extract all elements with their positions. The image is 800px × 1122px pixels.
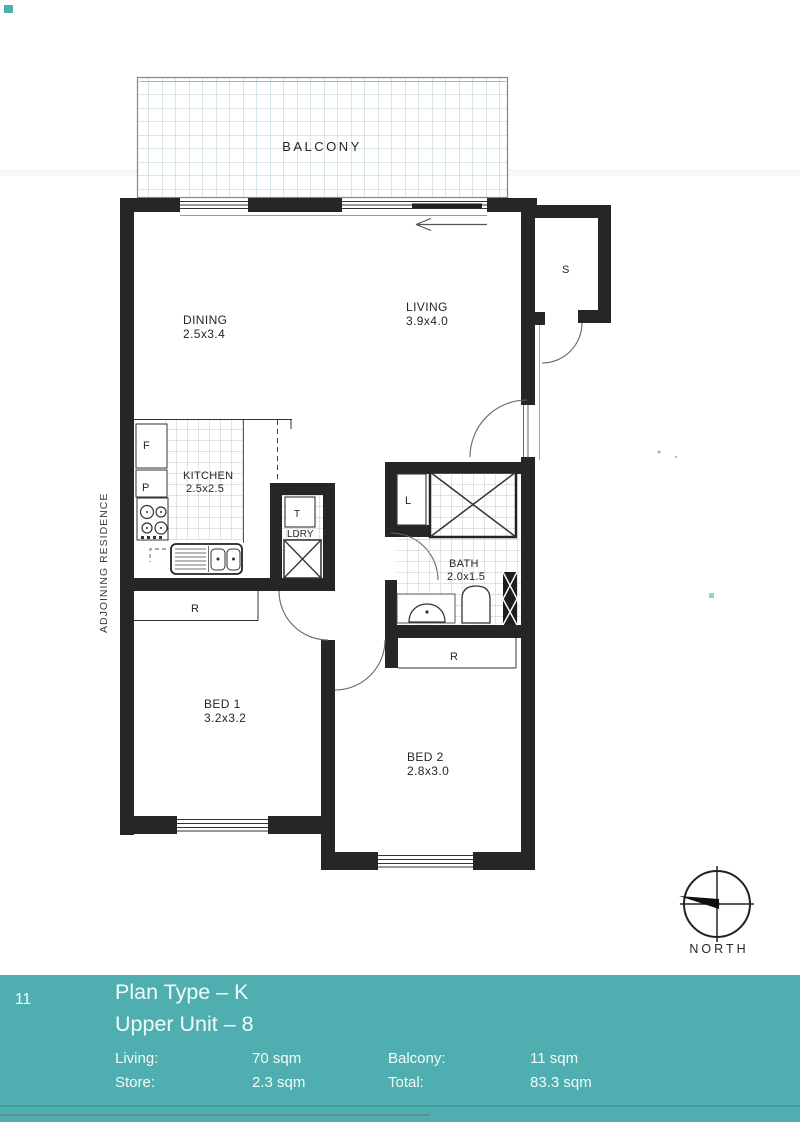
balcony-label: BALCONY [282,139,362,154]
page-number: 11 [15,991,31,1009]
stove [137,498,168,540]
room-dims-bath: 2.0x1.5 [447,571,485,583]
band-divider-line [0,1105,800,1107]
total-area-label: Total: [388,1074,424,1091]
living-area-label: Living: [115,1050,158,1067]
pantry-box [136,470,167,497]
room-dims-dining: 2.5x3.4 [183,327,225,341]
room-dims-living: 3.9x4.0 [406,314,448,328]
balcony-area: BALCONY [138,78,508,198]
store-area-value: 2.3 sqm [252,1074,305,1091]
store-door-arc [542,323,582,363]
fridge-box [136,424,167,468]
balcony-area-label: Balcony: [388,1050,446,1067]
room-label-bath: BATH [449,558,479,570]
store-area-label: Store: [115,1074,155,1091]
kitchen-sink [171,544,242,574]
room-label-living: LIVING [406,300,448,314]
room-label-dining: DINING [183,313,227,327]
dishwasher-dashed [150,549,166,562]
kitchen-fittings [134,420,292,575]
bed1-door-arc [279,591,328,640]
corner-scan-speck [4,5,13,13]
store-tag: S [562,264,569,276]
pantry-tag: P [142,482,149,494]
toilet [462,586,490,623]
bed2-door-arc [335,640,385,690]
robe1-tag: R [191,603,199,615]
washer-box [284,540,321,578]
floor-plan: BALCONY [0,0,800,975]
duct [503,572,517,625]
linen-box [397,474,426,525]
scan-red-line [0,1114,430,1116]
room-label-bed2: BED 2 [407,750,444,764]
unit-title: Upper Unit – 8 [115,1012,254,1037]
shower [430,472,516,537]
north-label: NORTH [689,942,748,956]
footer-band: 11 Plan Type – K Upper Unit – 8 Living: … [0,975,800,1122]
sliding-door-arrow [416,219,487,231]
room-dims-bed2: 2.8x3.0 [407,764,449,778]
room-label-bed1: BED 1 [204,697,241,711]
balcony-area-value: 11 sqm [530,1050,578,1067]
bathroom-fittings [397,472,521,625]
laundry-tag: LDRY [287,529,314,540]
total-area-value: 83.3 sqm [530,1074,592,1091]
room-label-kitchen: KITCHEN [183,470,233,482]
tub-tag: T [294,509,300,520]
room-dims-kitchen: 2.5x2.5 [186,483,224,495]
vanity-basin [397,594,455,623]
plan-type-title: Plan Type – K [115,980,248,1005]
linen-tag: L [405,495,411,507]
adjoining-residence-label: ADJOINING RESIDENCE [98,493,110,633]
entry-door-leaf [524,405,529,457]
robe2-tag: R [450,651,458,663]
living-area-value: 70 sqm [252,1050,301,1067]
fridge-tag: F [143,440,150,452]
room-dims-bed1: 3.2x3.2 [204,711,246,725]
north-compass: NORTH [679,866,754,956]
entry-door-arc [470,400,527,457]
sliding-door-panel [412,204,482,209]
